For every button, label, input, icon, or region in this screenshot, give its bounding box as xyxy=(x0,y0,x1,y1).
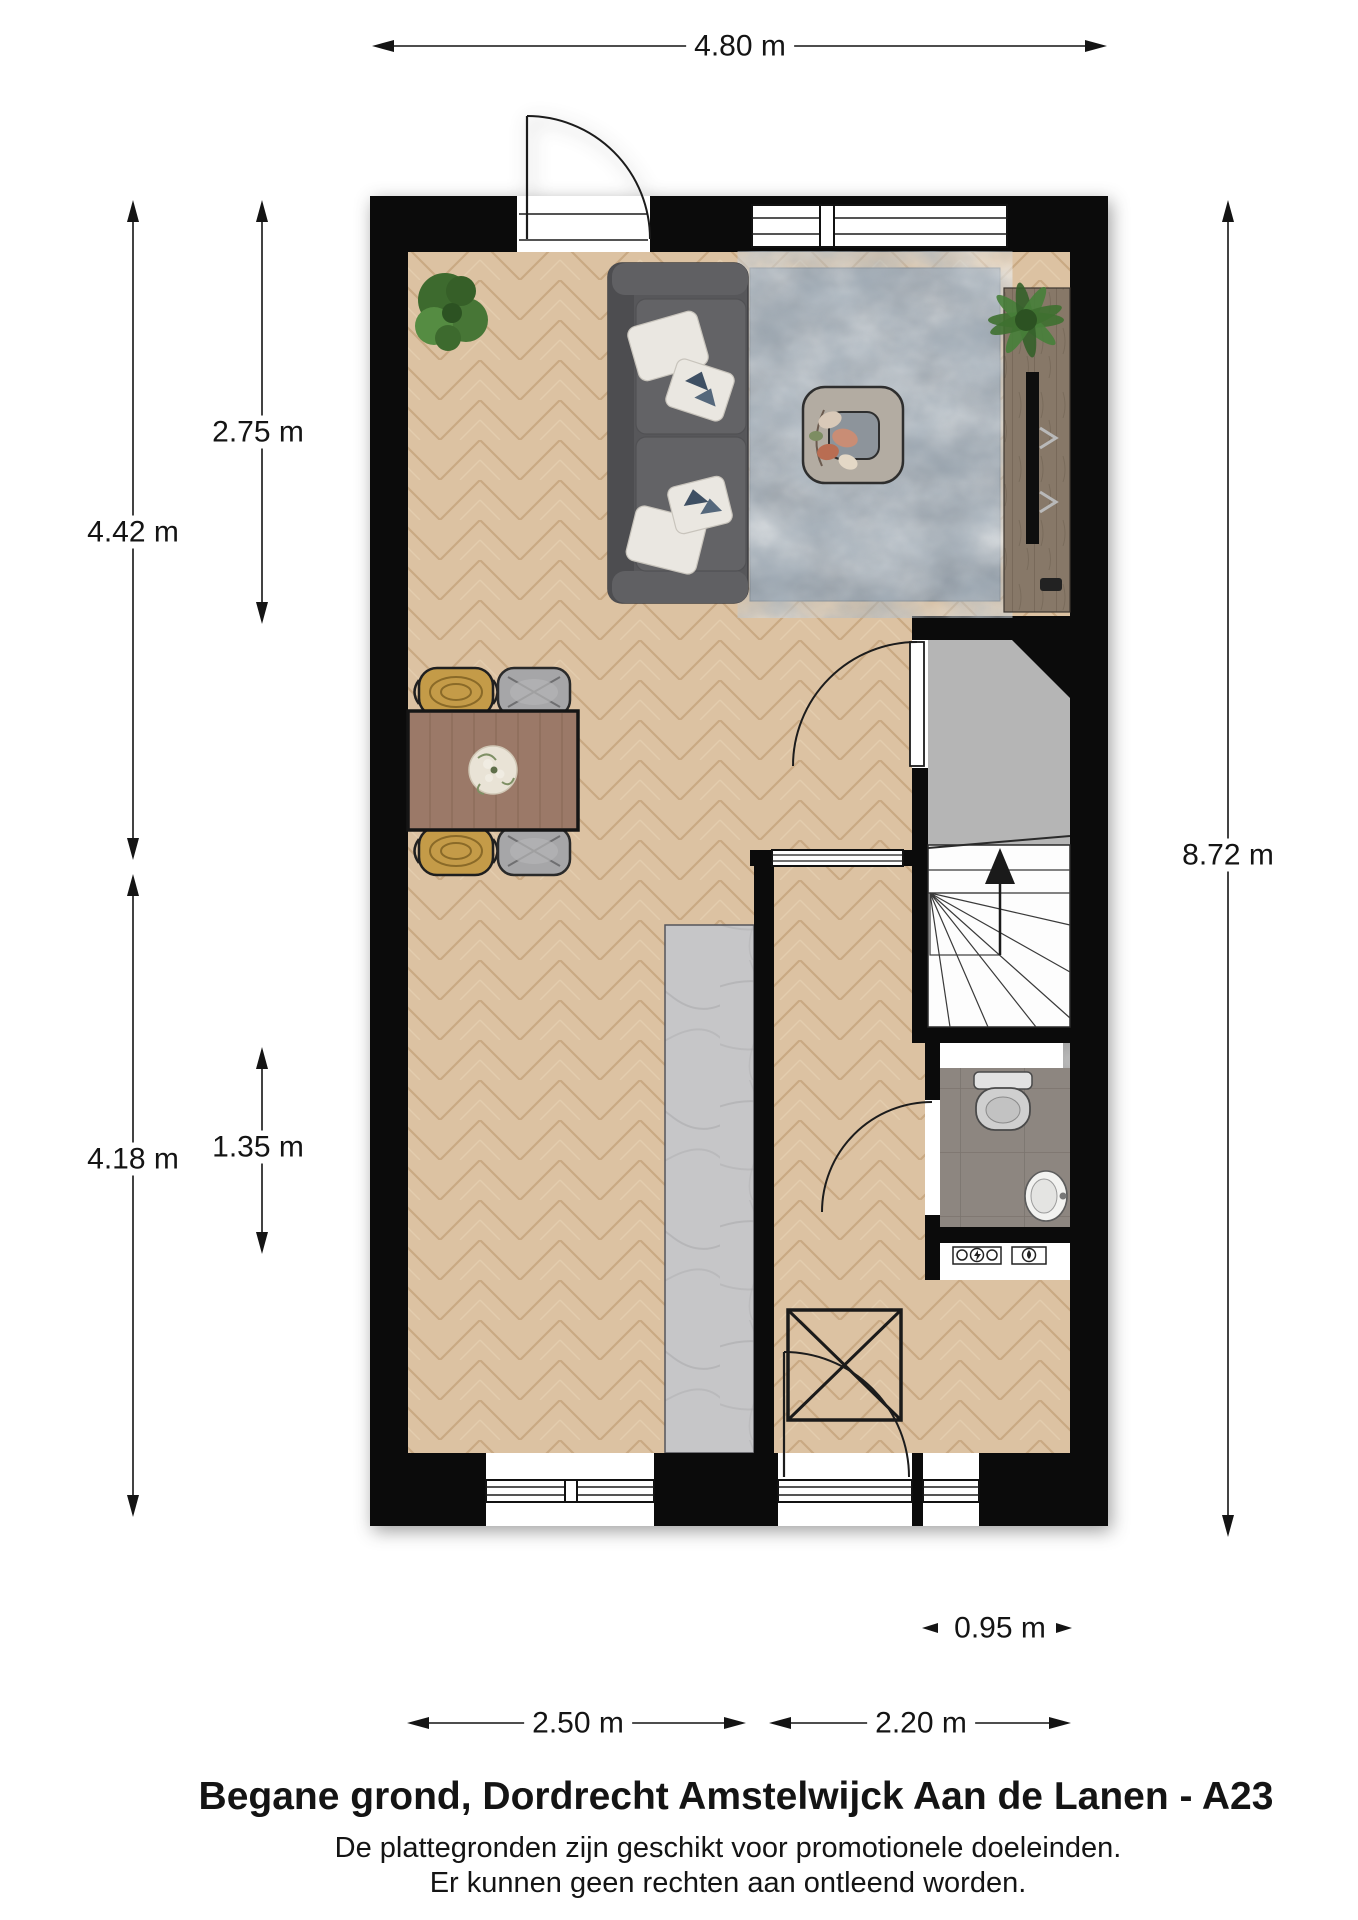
dim-label-bottom-right: 2.20 m xyxy=(867,1707,975,1740)
front-window xyxy=(752,205,1007,247)
electric-meter-icon xyxy=(953,1247,1001,1264)
dim-label-left-lower-overall: 4.18 m xyxy=(79,1143,187,1176)
kitchen-counter xyxy=(665,925,754,1453)
floor-plan-drawing xyxy=(0,0,1358,1920)
kitchen-window xyxy=(486,1453,654,1526)
dim-left-upper-inner xyxy=(256,200,268,624)
dim-label-right-height: 8.72 m xyxy=(1174,839,1282,872)
wall-toilet-bottom xyxy=(925,1227,1070,1243)
dim-label-top-width: 4.80 m xyxy=(686,30,794,63)
rear-sidelight-window xyxy=(923,1453,979,1526)
chair-gray xyxy=(498,827,570,875)
table-centerpiece xyxy=(469,746,517,794)
front-door-opening xyxy=(517,196,650,252)
rear-hall-floor xyxy=(925,1280,1070,1453)
rear-door-opening xyxy=(778,1453,912,1526)
building xyxy=(370,116,1108,1526)
toilet-threshold xyxy=(940,1043,1063,1068)
wall-stairs-toilet xyxy=(912,1027,1070,1043)
kitchen-passage-opening xyxy=(772,850,903,866)
hallway-floor xyxy=(772,850,928,1453)
wall-vestibule-top xyxy=(912,616,1070,640)
dim-left-lower-overall xyxy=(127,874,139,1517)
meter-cupboard xyxy=(940,1243,1070,1280)
dining-table xyxy=(408,711,578,830)
chair-rattan xyxy=(415,668,498,716)
media-device xyxy=(1040,578,1062,591)
tv xyxy=(1026,372,1039,544)
dim-label-left-upper-inner: 2.75 m xyxy=(204,416,312,449)
chair-rattan xyxy=(415,827,498,875)
floorplan-page: 4.80 m 4.42 m 2.75 m 4.18 m 1.35 m 8.72 … xyxy=(0,0,1358,1920)
toilet xyxy=(974,1072,1032,1130)
disclaimer-line-2: Er kunnen geen rechten aan ontleend word… xyxy=(430,1867,1027,1900)
disclaimer-line-1: De plattegronden zijn geschikt voor prom… xyxy=(335,1832,1122,1865)
dim-label-left-upper-overall: 4.42 m xyxy=(79,516,187,549)
coffee-table xyxy=(803,387,903,483)
page-title: Begane grond, Dordrecht Amstelwijck Aan … xyxy=(199,1775,1274,1819)
wall-kitchen-hall xyxy=(754,850,774,1453)
toilet-door-opening xyxy=(925,1100,940,1215)
chair-gray xyxy=(498,668,570,716)
dim-label-left-lower-inner: 1.35 m xyxy=(204,1131,312,1164)
sofa xyxy=(608,263,748,603)
dim-label-bottom-left: 2.50 m xyxy=(524,1707,632,1740)
toilet-sink xyxy=(1025,1171,1067,1221)
water-meter-icon xyxy=(1012,1247,1046,1264)
dim-label-rear-section: 0.95 m xyxy=(946,1612,1054,1645)
